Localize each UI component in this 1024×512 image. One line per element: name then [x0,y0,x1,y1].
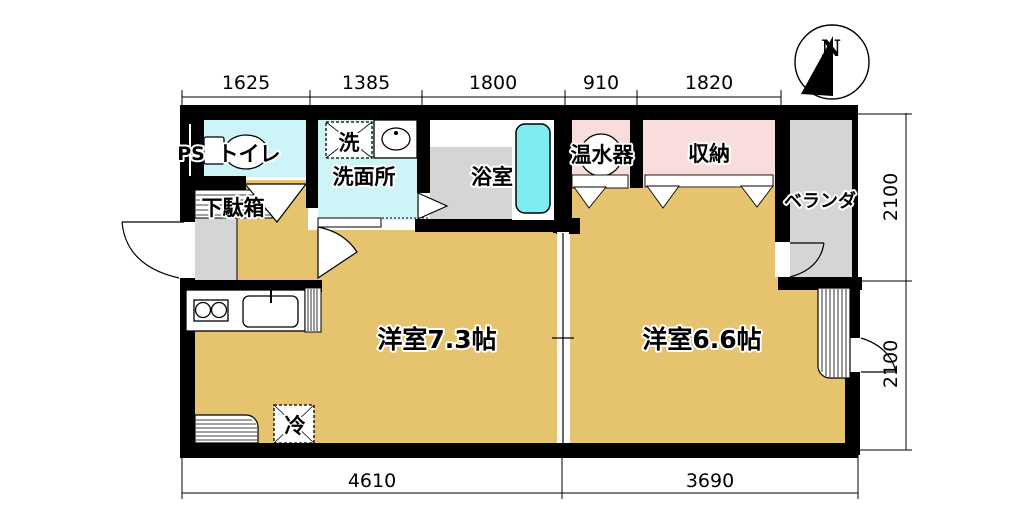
label-washer: 洗 [339,131,360,155]
dim-right-1: 2100 [880,173,902,221]
dim-top-2: 1385 [342,72,390,94]
wall-bottom [180,443,858,458]
wall-storage-veranda [775,113,790,243]
counter-shelf-outline [305,288,321,332]
wall-bathroom-bottom [415,219,580,232]
dim-top-1: 1625 [222,72,270,94]
vanity-faucet [395,132,398,135]
counter-side-shelf [305,288,321,332]
entrance-door [122,222,184,278]
compass-north-label: N [821,36,841,62]
label-ps: PS [177,143,205,165]
label-toilet: トイレ [218,142,281,166]
label-veranda: ベランダ [784,190,856,212]
label-shoe-cabinet: 下駄箱 [202,196,265,220]
entrance-opening [180,222,195,278]
veranda-door-opening [775,242,790,277]
wall-washroom-bathroom [417,113,430,193]
label-storage: 収納 [688,142,730,166]
label-washroom: 洗面所 [333,165,396,189]
entrance-door-arc [122,222,179,278]
wall-top [180,105,858,120]
burner-right [212,303,227,318]
bottom-left-striped-unit [195,415,258,443]
dim-top-4: 910 [583,72,619,94]
kitchen-counter [186,287,305,331]
dim-top-5: 1820 [685,72,733,94]
dim-bottom-1: 4610 [348,470,396,492]
dim-bottom-2: 3690 [686,470,734,492]
wall-toilet-bottom [180,176,246,190]
compass: N [795,25,869,99]
genkan-floor [195,218,237,285]
label-western-room-6-6: 洋室6.6帖 [642,325,761,354]
heater-door-band [572,175,628,188]
bottom-striped-outline [195,415,258,443]
wall-toilet-right [306,105,318,208]
label-water-heater: 温水器 [571,143,635,167]
right-wall-striped-unit [818,288,850,378]
dim-right-2: 2100 [880,340,902,388]
floor-plan-canvas: 1625 1385 1800 910 1820 2100 2100 4610 3… [0,0,1024,512]
label-bathroom: 浴室 [471,165,513,189]
dim-top-3: 1800 [469,72,517,94]
bathtub [516,124,550,213]
burner-left [196,303,211,318]
label-fridge: 冷 [285,414,306,438]
label-western-room-7-3: 洋室7.3帖 [377,325,496,354]
wall-bathroom-heater [553,113,572,233]
floor-plan-page: 1625 1385 1800 910 1820 2100 2100 4610 3… [0,0,1024,512]
storage-door-band [645,175,773,187]
hall-door-leaf [318,218,381,227]
